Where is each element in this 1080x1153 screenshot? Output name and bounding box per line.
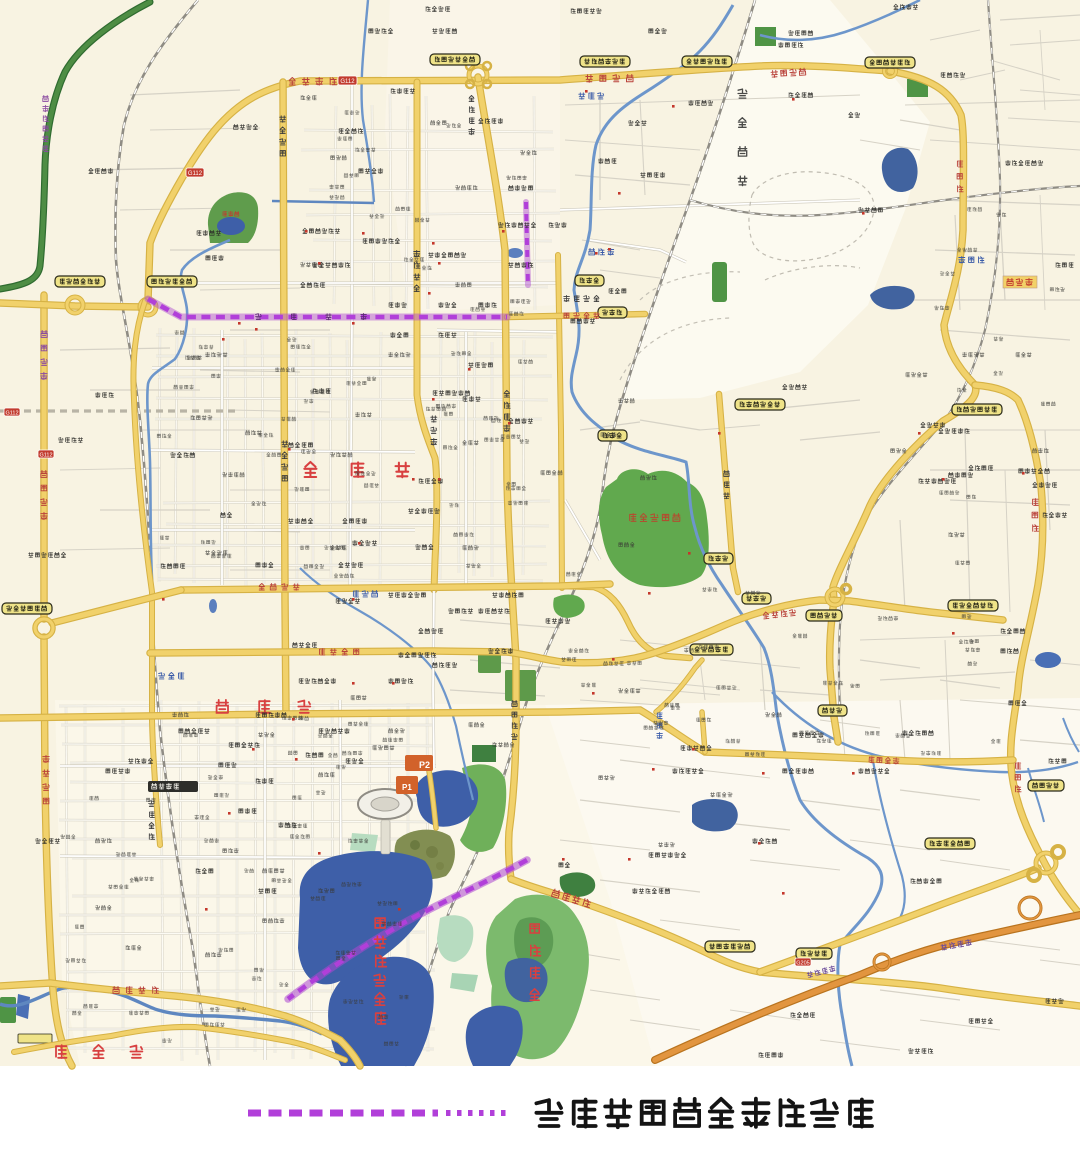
svg-text:G205: G205: [796, 961, 809, 967]
svg-text:G112: G112: [340, 79, 355, 85]
svg-text:P1: P1: [402, 783, 412, 792]
svg-text:G112: G112: [39, 453, 52, 459]
svg-text:G112: G112: [5, 411, 18, 417]
svg-text:G112: G112: [188, 171, 203, 177]
svg-text:P2: P2: [419, 760, 430, 770]
